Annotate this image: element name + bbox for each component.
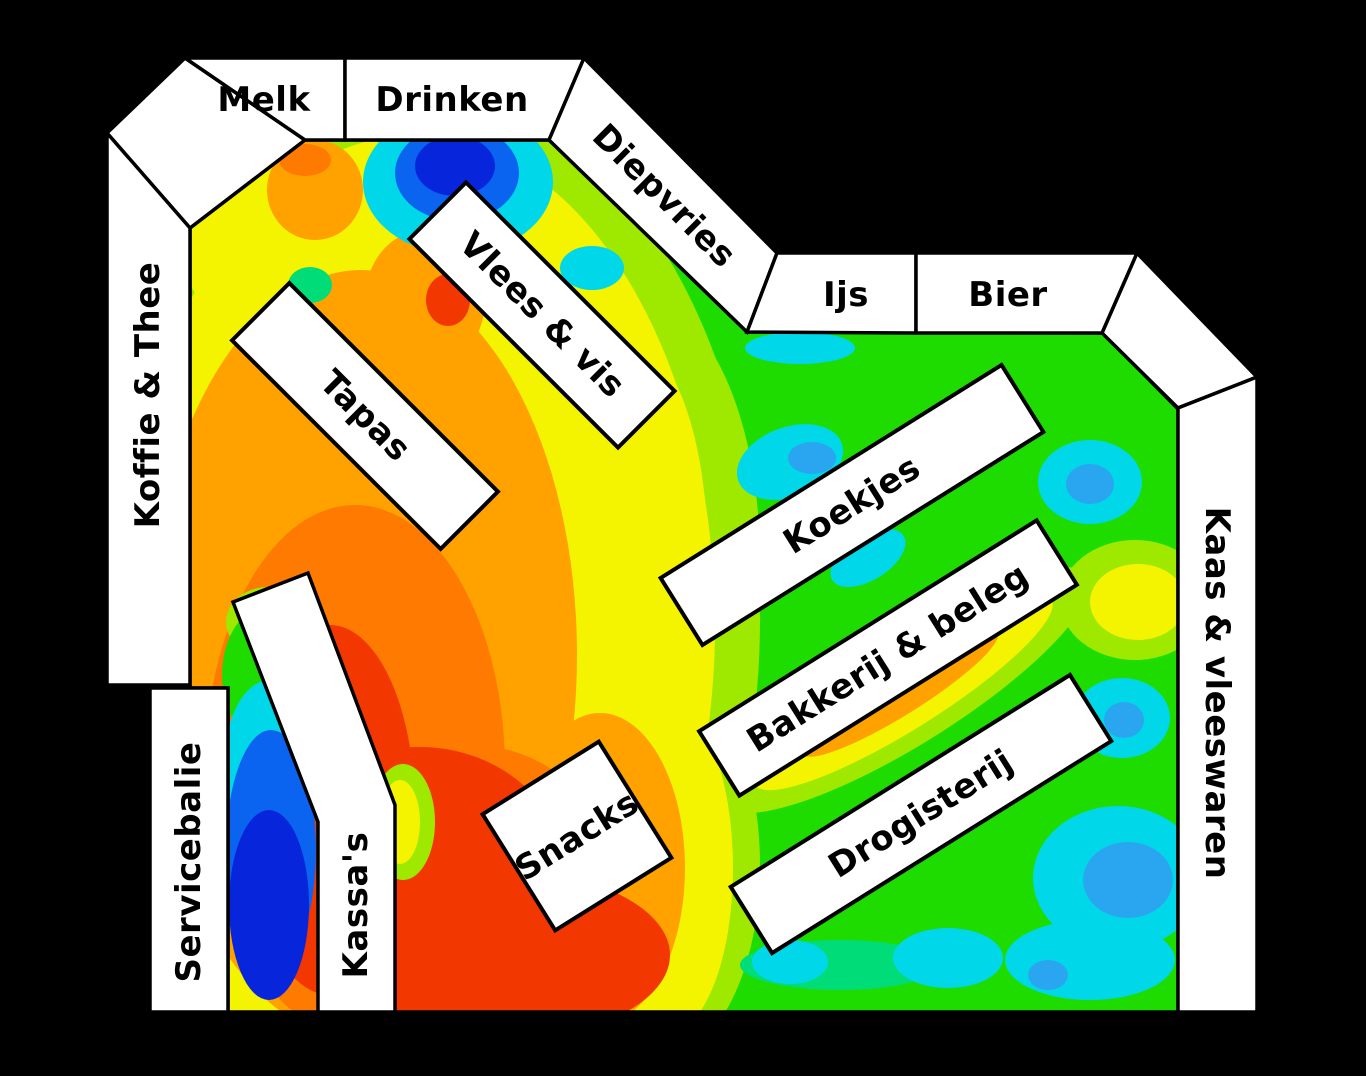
aisle-label-bier: Bier [968,275,1047,315]
heat-blob [893,928,1003,988]
store-heatmap-figure: Melk Drinken Diepvries Ijs Bier Kaas & v… [0,0,1366,1076]
heat-blob [752,940,828,984]
heat-blob [415,136,495,196]
heat-blob [788,442,836,474]
heat-blob [1028,960,1068,990]
heat-blob [745,332,855,364]
aisle-label-ijs: Ijs [823,275,869,315]
aisle-label-servicebalie: Servicebalie [169,742,209,983]
heat-blob [1066,464,1114,504]
heat-blob [1005,920,1175,1000]
heat-blob [229,810,309,1000]
heat-blob [1104,702,1144,738]
aisle-label-drinken: Drinken [375,80,528,120]
heat-blob [1083,842,1173,918]
aisle-label-koffie-thee: Koffie & Thee [128,262,168,529]
aisle-label-kassas: Kassa's [336,832,376,979]
aisle-label-melk: Melk [217,80,311,120]
aisle-label-kaas-vleeswaren: Kaas & vleeswaren [1197,507,1237,880]
heat-blob [1090,564,1186,640]
